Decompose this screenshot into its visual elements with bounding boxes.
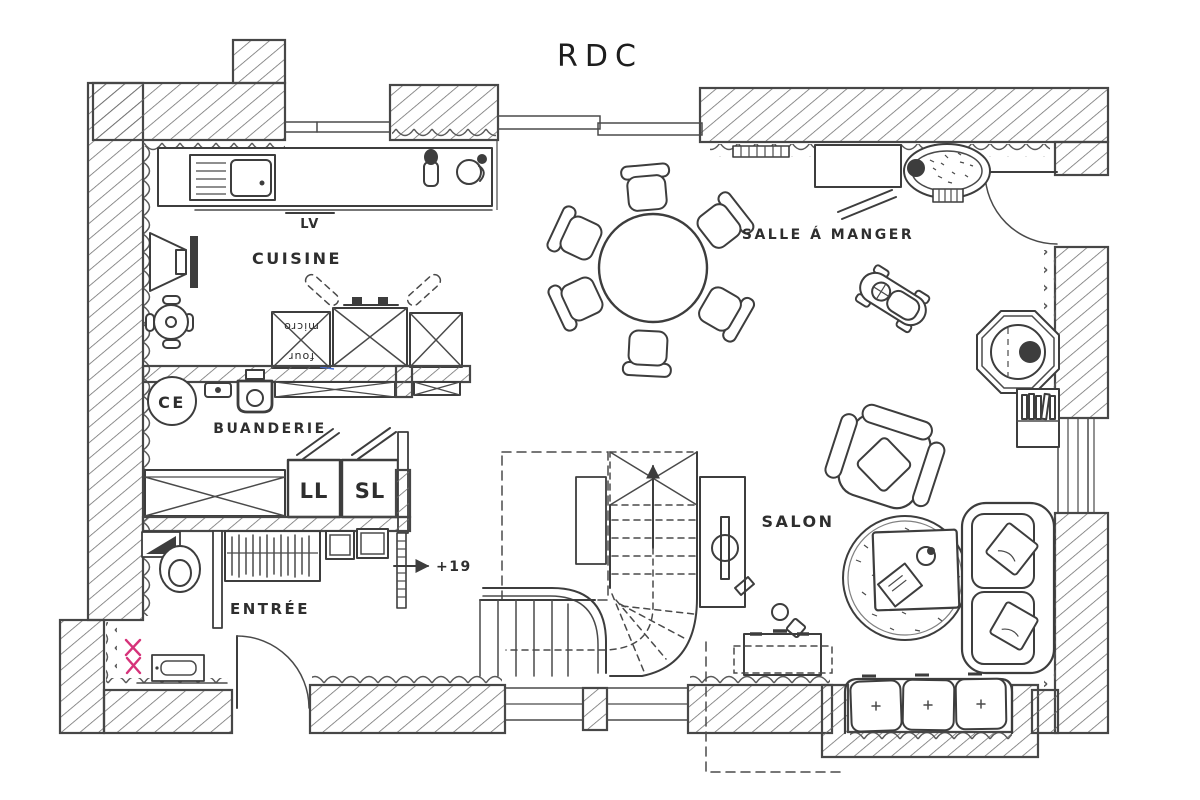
page-title: RDC [557,39,643,74]
toilet [160,546,200,592]
partition-post [396,470,410,517]
sofa [962,503,1054,673]
dryer: SL [342,428,398,517]
dining-radiator [733,146,789,157]
room-label-salle-a-manger: SALLE Á MANGER [742,226,914,243]
hall-console [700,477,754,607]
step-height-label: +19 [436,559,472,575]
dining-chair [621,163,673,212]
room-label-entree: ENTRÉE [230,599,310,618]
plant [904,144,990,202]
room-label-cuisine: CUISINE [252,249,342,268]
kitchen: LV CUISINE micro four [143,140,497,397]
dining-chair [545,204,606,267]
window-dining-glazing [498,116,702,135]
fireplace-hood [150,233,198,291]
armchair [820,397,951,518]
right-wall-door [985,172,1057,244]
coat-rack [225,531,320,581]
soap-tray [205,383,231,397]
kitchen-half-wall [143,366,470,382]
dishwasher-label: LV [300,217,320,232]
shoe-cabinets [326,529,388,559]
step-threshold [397,533,406,608]
tv-stand [734,604,832,675]
water-heater-label: CE [158,393,186,412]
kitchen-island: micro four [272,272,462,369]
toy-car [851,262,934,336]
dining-table [599,214,707,322]
storage-crossed [145,470,285,516]
wc-partition [213,531,222,628]
window-top-left [285,122,390,132]
floor-plan-svg: LV CUISINE micro four [0,0,1200,800]
floor-plan-page: LV CUISINE micro four [0,0,1200,800]
sideboard [815,145,901,187]
window-bench [845,674,1012,733]
entree: +19 ENTRÉE [126,529,472,681]
dining-chair [546,270,607,333]
entry-radiator [152,655,204,681]
bookshelf [1017,389,1059,447]
window-right-wall [1058,418,1094,513]
cooktop-icon [344,297,398,305]
folding-hatch-lines [838,190,896,219]
stair-treads-lower [480,600,595,676]
water-heater: CE [148,377,196,425]
wood-stove [977,311,1059,393]
entrance-door [237,636,309,708]
oven-label: four [288,350,314,363]
dining-chair [623,330,673,377]
room-label-salon: SALON [761,512,834,531]
kitchen-counter [158,148,492,206]
microwave-label: micro [283,320,319,333]
pink-marks [126,640,140,673]
dishwasher-mark: LV [286,213,334,232]
dining-room: SALLE Á MANGER [545,144,1059,447]
stairs [480,452,697,676]
door-swing-dashed [303,272,443,308]
understairs-shelf [576,477,606,564]
dryer-label: SL [355,479,386,503]
coffee-table [873,530,960,611]
washing-machine-label: LL [300,479,329,503]
room-label-buanderie: BUANDERIE [213,421,326,437]
washing-machine: LL [288,429,340,517]
